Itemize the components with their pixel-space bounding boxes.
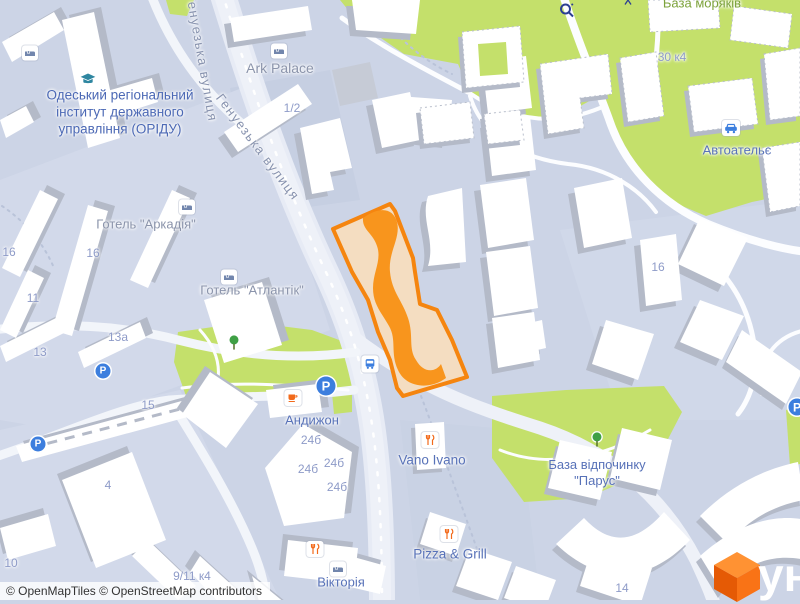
parking-icon: P [789, 399, 800, 416]
parking-icon: P [96, 364, 111, 379]
lun-logo[interactable]: ун [710, 550, 800, 600]
park-tree-icon [226, 334, 242, 357]
car-service-icon [722, 120, 740, 136]
viewpoint-magnifier-icon [558, 2, 576, 25]
restaurant-fork-knife-icon [441, 526, 458, 542]
map-art [0, 0, 800, 600]
playground-person-icon [622, 0, 634, 11]
map-canvas[interactable] [0, 0, 800, 600]
parking-icon: P [317, 377, 336, 396]
map-attribution[interactable]: © OpenMapTiles © OpenStreetMap contribut… [0, 582, 270, 600]
hotel-bed-icon [22, 46, 38, 61]
hotel-bed-icon [179, 200, 195, 215]
bus-stop-icon [362, 356, 379, 373]
restaurant-fork-knife-icon [307, 541, 324, 557]
lun-cube-icon [710, 550, 764, 604]
hotel-bed-icon [271, 44, 287, 59]
cafe-cup-icon [285, 390, 302, 406]
hotel-bed-icon [330, 562, 346, 577]
logo-text: ун [758, 550, 800, 600]
university-graduation-cap-icon [79, 72, 97, 93]
attribution-text: © OpenMapTiles © OpenStreetMap contribut… [6, 584, 262, 598]
parking-icon: P [31, 437, 46, 452]
restaurant-fork-knife-icon [422, 432, 439, 448]
hotel-bed-icon [221, 270, 237, 285]
park-tree-icon [589, 431, 605, 454]
